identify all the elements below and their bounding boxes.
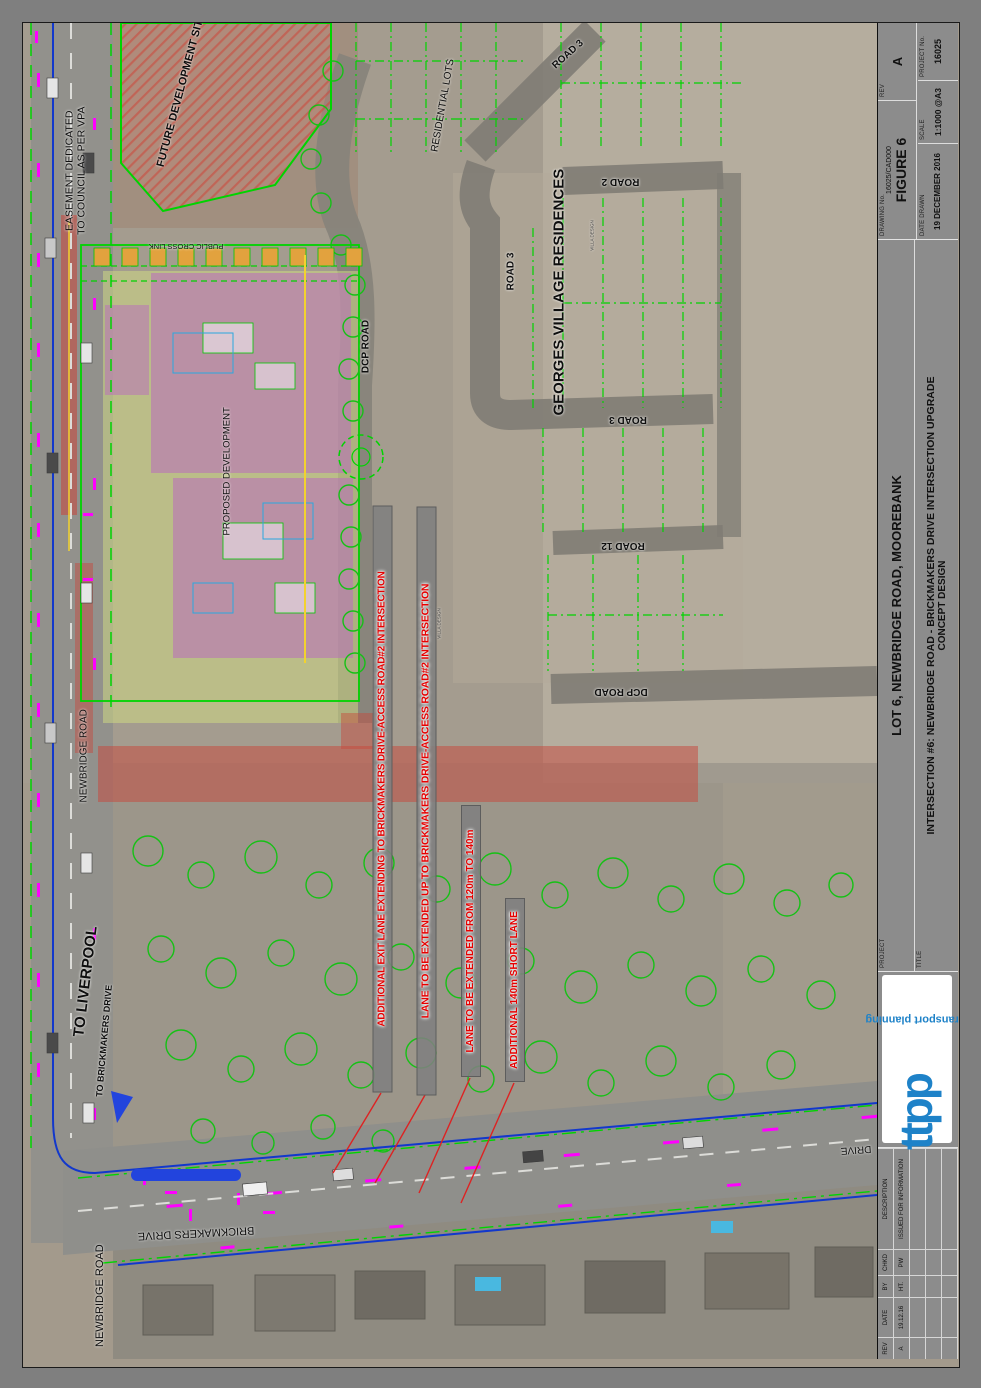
label-road3-low: ROAD 3 <box>603 414 653 425</box>
cad-linework <box>23 23 877 1359</box>
annotation-additional-short-lane: ADDITIONAL 140m SHORT LANE <box>505 898 525 1082</box>
rev-header-description: DESCRIPTION <box>878 1148 894 1249</box>
rev-cell-by: HT. <box>894 1275 910 1297</box>
title-band: TITLE INTERSECTION #6: NEWBRIDGE ROAD - … <box>915 240 958 971</box>
rev-cell-date: 19.12.16 <box>894 1297 910 1337</box>
drawing-page: EASEMENT DEDICATED TO COUNCIL AS PER VPA… <box>0 0 981 1388</box>
label-easement: EASEMENT DEDICATED TO COUNCIL AS PER VPA <box>64 106 88 236</box>
project-label: PROJECT <box>880 939 886 968</box>
label-road2: ROAD 2 <box>593 176 648 187</box>
scale-value: 1:1000 @A3 <box>933 88 943 136</box>
label-villa-design-2: VILLA DESIGN <box>590 218 595 254</box>
drawing-title-line1: INTERSECTION #6: NEWBRIDGE ROAD - BRICKM… <box>925 377 937 835</box>
drawing-number-label: DRAWING No. <box>880 194 886 236</box>
project-number-value: 16025 <box>933 39 943 64</box>
project-band: PROJECT LOT 6, NEWBRIDGE ROAD, MOOREBANK <box>878 240 915 971</box>
annotation-additional-exit-lane: ADDITIONAL EXIT LANE EXTENDING TO BRICKM… <box>373 506 393 1093</box>
drawing-number-cell: DRAWING No. 16025/CAD000 FIGURE 6 <box>878 100 917 239</box>
annotation-lane-extended-up-to: LANE TO BE EXTENDED UP TO BRICKMAKERS DR… <box>417 507 437 1096</box>
ttpp-logo: ttpp transport planning <box>882 975 952 1143</box>
date-label: DATE DRAWN <box>920 194 926 236</box>
rev-cell-chkd: PW <box>894 1249 910 1275</box>
rev-header-chkd: CHKD <box>878 1249 894 1275</box>
revision-cell: REV A <box>878 23 917 100</box>
drawing-sheet: EASEMENT DEDICATED TO COUNCIL AS PER VPA… <box>22 22 960 1368</box>
annotation-lane-extended-120-140: LANE TO BE EXTENDED FROM 120m TO 140m <box>461 805 481 1077</box>
label-georges-village-residences: GEORGES VILLAGE RESIDENCES <box>551 176 568 416</box>
label-dcp-road-north: DCP ROAD <box>361 312 372 382</box>
aerial-map-canvas: EASEMENT DEDICATED TO COUNCIL AS PER VPA… <box>23 23 877 1359</box>
title-block: REV DATE BY CHKD DESCRIPTION A 19.12.16 … <box>877 23 958 1359</box>
rev-header-rev: REV <box>878 1337 894 1359</box>
scale-label: SCALE <box>920 119 926 140</box>
revision-value: A <box>890 57 905 66</box>
label-proposed-development: PROPOSED DEVELOPMENT <box>222 416 233 536</box>
label-road12: ROAD 12 <box>594 540 652 551</box>
scale-cell: SCALE 1:1000 @A3 <box>918 80 958 143</box>
revision-label: REV <box>880 84 886 97</box>
project-name: LOT 6, NEWBRIDGE ROAD, MOOREBANK <box>889 475 904 736</box>
project-title-section: PROJECT LOT 6, NEWBRIDGE ROAD, MOOREBANK… <box>878 239 958 971</box>
project-number-label: PROJECT No. <box>920 36 926 77</box>
title-label: TITLE <box>917 951 923 968</box>
label-public-cross-link: PUBLIC CROSS LINK <box>146 242 226 251</box>
label-road3-mid: ROAD 3 <box>506 247 517 297</box>
label-newbridge-road-mid: NEWBRIDGE ROAD <box>79 713 90 803</box>
label-dcp-road-east: DCP ROAD <box>588 686 654 697</box>
figure-number: FIGURE 6 <box>893 138 909 203</box>
rev-header-date: DATE <box>878 1297 894 1337</box>
logo-section: ttpp transport planning <box>878 971 958 1147</box>
label-villa-design-1: VILLA DESIGN <box>437 606 442 642</box>
rev-header-by: BY <box>878 1275 894 1297</box>
rev-cell-rev: A <box>894 1337 910 1359</box>
project-number-cell: PROJECT No. 16025 <box>918 23 958 80</box>
drawing-info-section: DRAWING No. 16025/CAD000 FIGURE 6 REV A … <box>878 23 958 239</box>
ttpp-logo-tagline: transport planning <box>865 1014 960 1026</box>
revision-table: REV DATE BY CHKD DESCRIPTION A 19.12.16 … <box>878 1147 958 1359</box>
date-value: 19 DECEMBER 2016 <box>933 153 942 230</box>
drawing-title-line2: CONCEPT DESIGN <box>937 561 948 651</box>
drawing-number: 16025/CAD000 <box>886 146 893 194</box>
ttpp-logo-text: ttpp <box>896 1075 937 1150</box>
date-cell: DATE DRAWN 19 DECEMBER 2016 <box>918 143 958 239</box>
label-newbridge-road-bottom: NEWBRIDGE ROAD <box>94 1247 106 1347</box>
rev-cell-description: ISSUED FOR INFORMATION <box>894 1148 910 1249</box>
